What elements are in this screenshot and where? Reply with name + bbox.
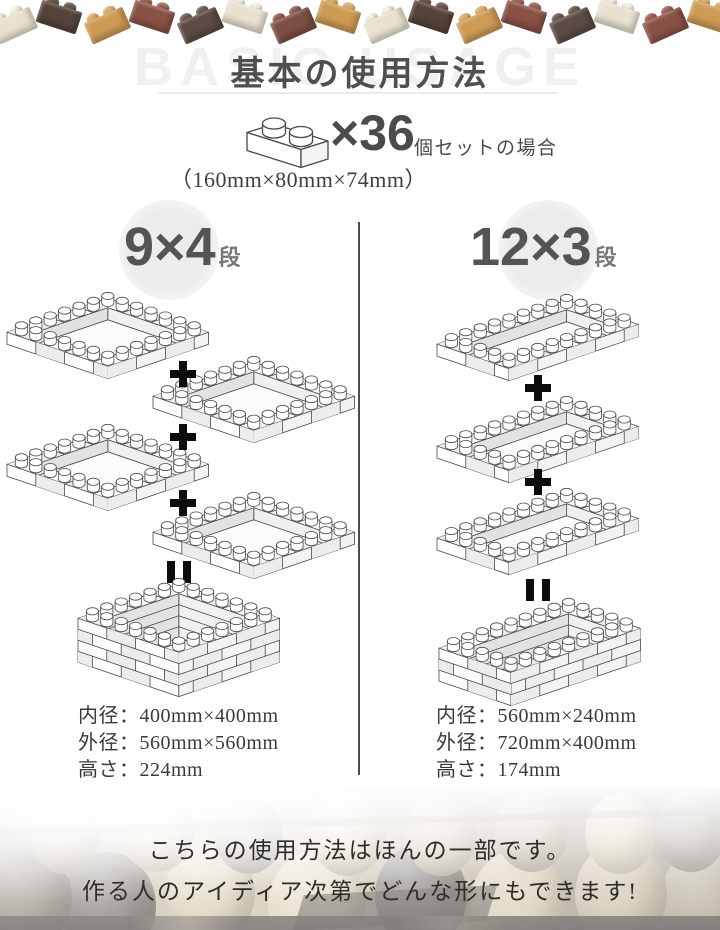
left-column-count: 9×4 [124,217,216,277]
garland-brick [220,0,272,37]
plus-icon [170,361,196,387]
title-underline [158,92,558,94]
garland-brick [499,0,551,37]
plus-icon [170,490,196,516]
garland-brick [34,0,86,37]
set-count-suffix: 個セットの場合 [414,133,558,160]
assembled-planter-left [77,576,281,699]
garland-brick [406,0,458,37]
spec-inner-diameter: 内径：400mm×400mm [78,703,279,730]
garland-brick [313,0,365,37]
left-specs: 内径：400mm×400mm 外径：560mm×560mm 高さ：224mm [78,703,279,784]
plus-icon [170,424,196,450]
garland-brick [127,0,179,37]
right-column-count: 12×3 [470,217,592,277]
spec-height: 高さ：224mm [78,757,279,784]
footer-line-2: 作る人のアイディア次第でどんな形にもできます! [0,871,720,912]
right-specs: 内径：560mm×240mm 外径：720mm×400mm 高さ：174mm [436,703,637,784]
right-column-unit: 段 [595,245,617,270]
footer-caption: こちらの使用方法はほんの一部です。 作る人のアイディア次第でどんな形にもできます… [0,830,720,912]
plus-icon [525,375,551,401]
column-divider [358,222,360,775]
brick-outline-icon [246,112,329,170]
spec-height: 高さ：174mm [436,757,637,784]
garland-brick [592,0,644,37]
spec-outer-diameter: 外径：560mm×560mm [78,730,279,757]
right-column-header: 12×3段 [470,220,617,274]
set-count-label: ×36 [330,108,415,158]
assembled-planter-right [438,596,642,708]
plus-icon [525,469,551,495]
left-column-unit: 段 [219,245,241,270]
page-title: 基本の使用方法 [0,46,720,95]
footer-line-1: こちらの使用方法はほんの一部です。 [0,830,720,871]
ring-diagram-right-3 [436,486,640,577]
page: BASIC USAGE 基本の使用方法 ×36 個セットの場合 （160mm×8… [0,0,720,930]
ring-diagram-right-1 [436,292,640,383]
footer-banner: こちらの使用方法はほんの一部です。 作る人のアイディア次第でどんな形にもできます… [0,788,720,930]
left-column-header: 9×4段 [124,220,241,274]
garland-brick [685,0,720,37]
spec-outer-diameter: 外径：720mm×400mm [436,730,637,757]
